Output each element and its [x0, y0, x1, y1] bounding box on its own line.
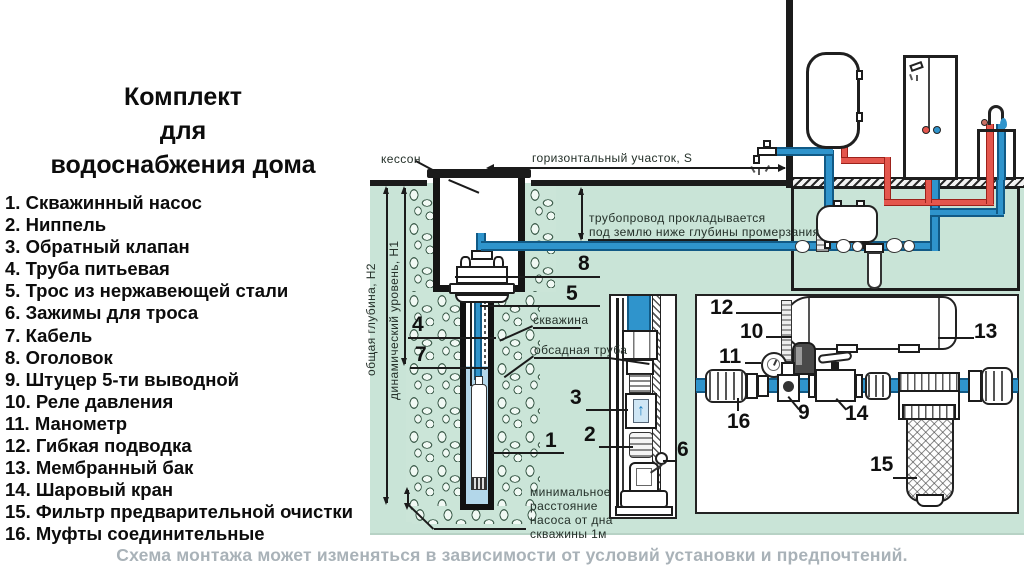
title-line: Комплект — [18, 80, 348, 114]
footer-note: Схема монтажа может изменяться в зависим… — [0, 545, 1024, 566]
nipple-detail — [629, 432, 653, 458]
ground-line — [370, 180, 427, 186]
callout-16-line — [737, 398, 739, 411]
callout-16: 16 — [727, 410, 750, 434]
pipe-fitting — [852, 241, 863, 252]
ground-line — [531, 180, 786, 186]
callout-12-line — [736, 312, 782, 314]
tank-seam — [938, 298, 940, 348]
callout-2: 2 — [584, 423, 596, 447]
flexible-hose-detail — [781, 300, 792, 362]
pipe-nut — [757, 375, 769, 397]
callout-4: 4 — [412, 313, 424, 337]
parts-list-item: 1. Скважинный насос — [5, 192, 367, 214]
filter-head — [898, 372, 960, 392]
callout-6-line — [663, 460, 677, 462]
callout-1: 1 — [545, 429, 557, 453]
parts-list-item: 10. Реле давления — [5, 391, 367, 413]
arrow-up-icon — [383, 186, 389, 194]
horizontal-section-label: горизонтальный участок, S — [532, 151, 692, 165]
check-valve-arrow-icon: ↑ — [637, 402, 645, 420]
callout-3-line — [586, 409, 628, 411]
gravel-left-upper — [406, 186, 433, 292]
basement-red-riser — [884, 157, 891, 204]
ball-valve-body — [815, 369, 856, 402]
wellhead-nut — [471, 250, 493, 260]
water-heater-port — [856, 70, 863, 80]
arrow-up-icon — [404, 487, 410, 494]
pump-cap — [475, 376, 483, 385]
callout-5: 5 — [566, 282, 578, 306]
well-label: скважина — [533, 313, 588, 327]
coupling-mid-ribs — [868, 375, 888, 397]
tank-port — [856, 200, 865, 207]
total-depth-label: общая глубина, Н2 — [364, 205, 378, 435]
arrow-right-icon — [778, 164, 786, 172]
basement-red-run — [884, 199, 994, 206]
water-spray-icon — [759, 168, 761, 175]
garden-tap-spout — [753, 155, 760, 164]
drinking-pipe-detail — [627, 296, 651, 332]
callout-6: 6 — [677, 438, 689, 462]
callout-12: 12 — [710, 296, 733, 320]
arrow-up-icon — [401, 186, 407, 194]
pipeline-note: трубопровод прокладывается — [589, 211, 766, 225]
basement-blue-branch — [930, 208, 1004, 217]
faucet-cold-tip — [1000, 118, 1007, 129]
parts-list-item: 8. Оголовок — [5, 347, 367, 369]
tank-foot — [898, 344, 920, 353]
callout-4-line — [408, 337, 496, 339]
parts-list-item: 6. Зажимы для троса — [5, 302, 367, 324]
callout-13: 13 — [974, 320, 997, 344]
arrow-down-icon — [401, 358, 407, 366]
parts-list-item: 15. Фильтр предварительной очистки — [5, 501, 367, 523]
pipe-nut — [968, 370, 982, 402]
callout-7-line — [410, 367, 490, 369]
callout-2-line — [599, 446, 633, 448]
pipe-fitting — [903, 240, 915, 252]
pipe-fitting — [886, 238, 903, 253]
title-line: водоснабжения дома — [18, 148, 348, 182]
check-valve-window: ↑ — [633, 399, 649, 423]
casing-label-underline — [534, 357, 609, 359]
parts-list-item: 4. Труба питьевая — [5, 258, 367, 280]
filter-bowl — [906, 418, 954, 502]
min-distance-note: насоса от дна — [530, 513, 613, 527]
page-title: Комплект для водоснабжения дома — [18, 80, 348, 182]
pump-strainer — [471, 477, 487, 490]
valve-stem — [831, 362, 839, 370]
callout-10-line — [766, 336, 792, 338]
parts-list-item: 3. Обратный клапан — [5, 236, 367, 258]
min-distance-note: расстояние — [530, 499, 598, 513]
horizontal-section-arrow — [490, 167, 785, 169]
garden-tap-body — [757, 147, 777, 156]
coupling-right-ribs — [985, 371, 1009, 401]
tank-leg — [824, 241, 831, 249]
dim-dynamic-level-line — [404, 188, 406, 364]
wellhead-flange — [449, 283, 515, 294]
callout-13-line — [938, 337, 974, 339]
parts-list-item: 5. Трос из нержавеющей стали — [5, 280, 367, 302]
pressure-tank-real — [816, 205, 878, 243]
tank-seam — [808, 298, 810, 348]
callout-11-line — [745, 362, 761, 364]
faucet-hot-knob — [981, 119, 988, 126]
coupling-left-ribs — [709, 372, 743, 400]
valve-nut — [855, 374, 863, 398]
callout-1-line — [492, 452, 564, 454]
callout-14: 14 — [845, 402, 868, 426]
callout-3: 3 — [570, 386, 582, 410]
sink-blue-pipe — [997, 132, 1006, 180]
callout-8: 8 — [578, 252, 590, 276]
parts-list-item: 13. Мембранный бак — [5, 457, 367, 479]
min-distance-note: скважины 1м — [530, 527, 607, 541]
parts-list-item: 7. Кабель — [5, 325, 367, 347]
submersible-pump — [471, 384, 487, 478]
arrow-left-icon — [486, 164, 494, 172]
casing-wall-line — [616, 298, 619, 512]
parts-list-item: 16. Муфты соединительные — [5, 523, 367, 545]
shower-valve-hot — [922, 126, 930, 134]
arrow-up-icon — [578, 187, 584, 195]
pipeline-note-underline — [588, 239, 778, 241]
filter-bowl-cap — [916, 494, 944, 507]
min-distance-note: минимальное — [530, 485, 611, 499]
relay-highlight — [796, 347, 802, 365]
kesson-label: кессон — [381, 152, 421, 166]
sink-red-pipe — [986, 132, 994, 180]
compression-fitting — [622, 330, 658, 360]
water-heater — [806, 52, 860, 149]
callout-9: 9 — [798, 401, 810, 425]
parts-list-item: 14. Шаровый кран — [5, 479, 367, 501]
pump-base — [615, 506, 673, 516]
filter-bowl-real — [867, 252, 882, 289]
infographic: Комплект для водоснабжения дома 1. Скваж… — [0, 0, 1024, 576]
callout-15: 15 — [870, 453, 893, 477]
safety-rope — [484, 300, 486, 370]
wellhead-body — [456, 266, 508, 284]
house-wall — [786, 0, 793, 188]
callout-8-line — [455, 276, 600, 278]
callout-10: 10 — [740, 320, 763, 344]
threaded-joint — [629, 374, 651, 393]
wellhead-lip — [455, 294, 509, 303]
parts-list-item: 9. Штуцер 5-ти выводной — [5, 369, 367, 391]
parts-list-item: 12. Гибкая подводка — [5, 435, 367, 457]
casing-label: обсадная труба — [534, 343, 627, 357]
shower-door-edge — [928, 58, 930, 132]
parts-list-item: 2. Ниппель — [5, 214, 367, 236]
pipe-fitting — [836, 239, 851, 253]
leader-line — [434, 528, 526, 530]
water-heater-port — [856, 112, 863, 122]
dynamic-level-label: динамический уровень, Н1 — [387, 200, 401, 440]
arrow-down-icon — [578, 233, 584, 241]
well-label-underline — [533, 327, 581, 329]
five-way-ball — [783, 381, 794, 392]
callout-11: 11 — [719, 345, 741, 369]
callout-15-line — [893, 477, 917, 479]
callout-5-line — [480, 305, 600, 307]
pipe-fitting — [795, 240, 810, 253]
burial-depth-arrow — [581, 189, 583, 239]
water-spray-icon — [917, 75, 919, 81]
title-line: для — [18, 114, 348, 148]
arrow-down-icon — [383, 497, 389, 505]
shower-valve-cold — [933, 126, 941, 134]
parts-list-item: 11. Манометр — [5, 413, 367, 435]
callout-7: 7 — [415, 343, 427, 367]
pump-cable — [470, 300, 472, 386]
tank-port — [833, 200, 842, 207]
pipeline-note: под землю ниже глубины промерзания — [589, 225, 820, 239]
pump-cable-detail — [622, 298, 624, 494]
parts-list: 1. Скважинный насос 2. Ниппель 3. Обратн… — [5, 192, 367, 546]
